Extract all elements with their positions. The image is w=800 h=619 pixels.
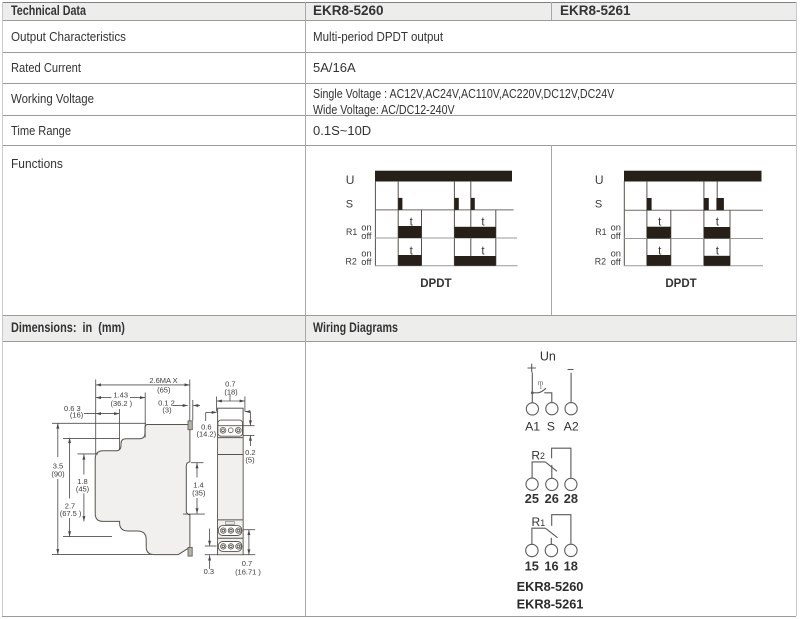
svg-text:26: 26 [545,491,559,506]
svg-text:off: off [361,257,372,267]
svg-text:t: t [481,246,485,258]
svg-text:S: S [346,199,353,211]
svg-text:EKR8-5260: EKR8-5260 [517,579,584,594]
svg-text:15: 15 [525,558,539,573]
svg-text:DPDT: DPDT [665,278,696,290]
svg-text:2.6MA X: 2.6MA X [149,376,177,385]
svg-text:A1: A1 [525,419,540,433]
svg-text:S: S [595,199,602,211]
svg-text:(16): (16) [70,411,84,420]
svg-text:0.3: 0.3 [204,567,214,576]
svg-text:S: S [547,419,555,433]
svg-text:18: 18 [564,558,578,573]
svg-text:(45): (45) [76,484,90,493]
svg-text:(36.2 ): (36.2 ) [110,399,132,408]
svg-text:R2: R2 [346,257,357,267]
svg-text:t: t [716,216,720,228]
svg-text:(5): (5) [245,455,255,464]
svg-text:off: off [611,231,622,241]
svg-text:off: off [611,257,622,267]
svg-text:R1: R1 [595,227,606,237]
svg-text:(14.2): (14.2) [197,429,217,438]
svg-text:Un: Un [540,350,556,364]
svg-text:(35): (35) [192,488,206,497]
svg-text:2: 2 [540,451,545,461]
svg-text:(67.5 ): (67.5 ) [60,509,82,518]
svg-text:1: 1 [540,518,545,528]
svg-text:(3): (3) [162,405,172,414]
svg-text:t: t [658,216,662,228]
svg-text:A2: A2 [564,419,579,433]
svg-text:t: t [481,216,485,228]
svg-text:16: 16 [544,558,558,573]
svg-text:(16.71 ): (16.71 ) [235,567,261,576]
svg-text:DPDT: DPDT [420,278,451,290]
svg-text:25: 25 [525,491,539,506]
svg-text:R1: R1 [346,227,357,237]
svg-text:R: R [532,515,541,529]
svg-text:U: U [346,173,355,187]
svg-text:28: 28 [564,491,578,506]
svg-text:off: off [361,231,372,241]
svg-text:U: U [595,173,604,187]
svg-text:EKR8-5261: EKR8-5261 [517,596,584,611]
svg-text:(90): (90) [51,470,65,479]
svg-text:(18): (18) [224,387,238,396]
svg-text:(65): (65) [157,386,171,395]
svg-text:R2: R2 [595,257,606,267]
